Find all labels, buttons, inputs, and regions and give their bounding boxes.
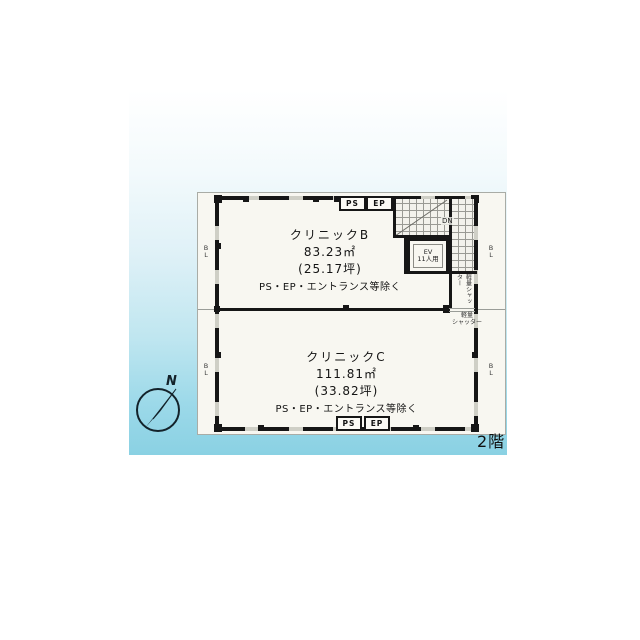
clinic-b-name: クリニックB (215, 226, 445, 243)
clinic-c-name: クリニックC (215, 348, 478, 365)
clinic-b-area-tsubo: (25.17坪) (215, 260, 445, 277)
wall-post (258, 425, 264, 431)
stair-down-label: DN (441, 217, 454, 225)
balcony-label: BL (202, 363, 210, 378)
wall-post (413, 425, 419, 431)
wall-post (243, 196, 249, 202)
shutter-vertical-label: 軽量シャッター (455, 274, 473, 309)
wall-post (313, 196, 319, 202)
stair-wall-inner (449, 196, 452, 274)
balcony-label: BL (487, 245, 495, 260)
shutter-bay: 軽量シャッター (449, 274, 475, 309)
ep-box-bottom: EP (364, 416, 390, 431)
divider-post (343, 305, 349, 311)
shutter-label-line2: シャッター (436, 319, 498, 326)
ep-label: EP (371, 419, 384, 428)
ep-label: EP (373, 199, 386, 208)
compass-arrow-icon (133, 383, 185, 435)
shutter-label: 軽量 シャッター (436, 312, 498, 326)
balcony-divider-right (478, 309, 505, 310)
ps-box-bottom: PS (336, 416, 362, 431)
floor-label: 2階 (477, 428, 505, 452)
clinic-c-text: クリニックC 111.81㎡ (33.82坪) PS・EP・エントランス等除く (215, 348, 478, 415)
ep-box-top: EP (366, 196, 393, 211)
ps-label: PS (343, 419, 356, 428)
divider-post (214, 306, 220, 312)
balcony-label: BL (202, 245, 210, 260)
balcony-label: BL (487, 363, 495, 378)
clinic-b-note: PS・EP・エントランス等除く (215, 278, 445, 293)
shutter-opening-line (449, 308, 475, 309)
stair-flight (452, 199, 474, 274)
clinic-b-text: クリニックB 83.23㎡ (25.17坪) PS・EP・エントランス等除く (215, 226, 445, 293)
wall-corner-post (214, 195, 222, 203)
divider-wall (215, 308, 449, 311)
clinic-c-area-m2: 111.81㎡ (215, 365, 478, 382)
clinic-c-note: PS・EP・エントランス等除く (215, 400, 478, 415)
ps-label: PS (346, 199, 359, 208)
balcony-divider-left (198, 309, 215, 310)
clinic-c-area-tsubo: (33.82坪) (215, 382, 478, 399)
ps-box-top: PS (339, 196, 366, 211)
clinic-b-area-m2: 83.23㎡ (215, 243, 445, 260)
floorplan-image: DN EV 11人用 軽量シャッター 軽量 シャッター PS EP PS EP … (0, 0, 640, 640)
compass-north-label: N (166, 374, 177, 389)
wall-corner-post (214, 424, 222, 432)
